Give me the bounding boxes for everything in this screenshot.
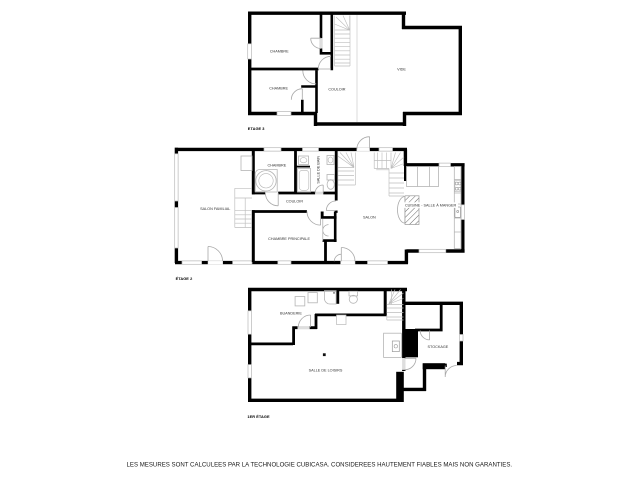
svg-text:COULOIR: COULOIR [286,199,303,203]
svg-text:ÉTAGE 2: ÉTAGE 2 [176,276,193,281]
svg-text:CUISINE - SALLE À MANGER: CUISINE - SALLE À MANGER [405,204,457,208]
svg-text:SALON FAMILIAL: SALON FAMILIAL [200,207,230,211]
svg-text:LES MESURES SONT CALCULEES PAR: LES MESURES SONT CALCULEES PAR LA TECHNO… [127,461,513,468]
svg-text:STOCKAGE: STOCKAGE [428,345,449,349]
svg-text:COULOIR: COULOIR [328,88,345,92]
svg-text:CHAMBRE: CHAMBRE [269,87,288,91]
svg-text:VIDE: VIDE [397,67,406,71]
svg-text:1ER ÉTAGE: 1ER ÉTAGE [247,414,270,419]
svg-text:SALON: SALON [363,216,376,220]
svg-text:ETAGE 3: ETAGE 3 [248,126,265,131]
svg-text:CHAMBRE: CHAMBRE [268,164,287,168]
svg-text:CHAMBRE PRINCIPALE: CHAMBRE PRINCIPALE [268,237,310,241]
svg-text:SALLE DE LOISIRS: SALLE DE LOISIRS [309,368,343,372]
svg-text:CHAMBRE: CHAMBRE [270,50,289,54]
svg-text:BUANDERIE: BUANDERIE [280,312,302,316]
svg-text:SALLE DE BAIN: SALLE DE BAIN [316,156,320,184]
